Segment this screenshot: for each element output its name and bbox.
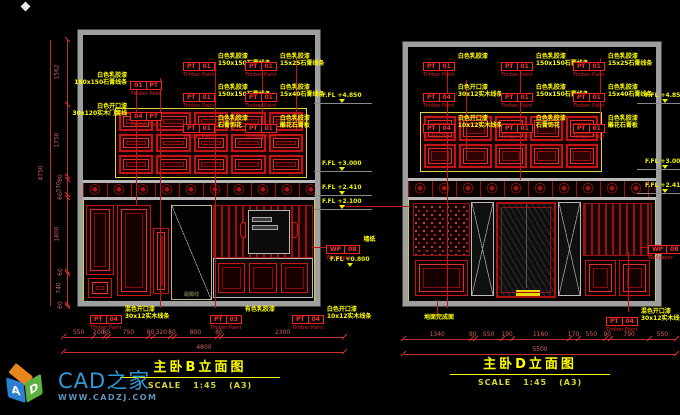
frieze-band xyxy=(408,178,656,200)
level-marker: F.FL +0.800 xyxy=(330,256,370,267)
dimension-segment: 1750 xyxy=(56,104,67,176)
wall-elevation xyxy=(408,200,656,301)
brand-name: CAD之家 xyxy=(58,370,158,393)
coffer-cell xyxy=(156,155,190,174)
sheet-size: (A3) xyxy=(229,381,252,390)
wainscot-panel xyxy=(415,260,468,296)
level-triangle-icon xyxy=(347,263,353,267)
dimension-total-vertical: 4750 xyxy=(41,40,51,306)
dimension-segment: 740 xyxy=(56,273,67,303)
sheet-size: (A3) xyxy=(559,378,582,387)
level-marker: F.FL +2.100 xyxy=(322,198,362,209)
wainscot-panel xyxy=(86,205,114,275)
dimension-segment: 750 xyxy=(108,326,148,337)
dimension-segment: 800 xyxy=(174,326,217,337)
dresser-mirror xyxy=(248,210,290,254)
material-callout: PT04Timber Paint 白色开口漆10x12实木线条 xyxy=(423,115,502,140)
level-marker: F.FL +3.000 xyxy=(645,158,680,169)
title-underline xyxy=(450,374,610,375)
callout-column: PT01Timber Paint 白色乳胶漆15x25石膏线条 PT01Timb… xyxy=(245,53,324,140)
frieze-band xyxy=(83,180,315,200)
scale-ratio: 1:45 xyxy=(523,378,547,387)
dimension-segment: 170 xyxy=(569,328,577,339)
coffer-cell xyxy=(194,155,228,174)
scale-ratio: 1:45 xyxy=(193,381,217,390)
door-threshold xyxy=(516,290,540,296)
callout-column: PT01Timber Paint 白色乳胶漆15x25石膏线条 PT01Timb… xyxy=(573,53,652,140)
material-callout: PT01Timber Paint 白色乳胶漆15x25石膏线条 xyxy=(573,53,652,78)
dimension-segment: 190 xyxy=(502,328,511,339)
elevation-title-block: 主卧D立面图 SCALE1:45(A3) xyxy=(450,353,610,387)
material-callout: 04PTTimber Paint 白色开口漆30x120实木门套线 xyxy=(72,103,162,128)
dimension-segment: 550 xyxy=(649,328,676,339)
material-callout: PT01Timber Paint 白色乳胶漆15x40石膏线条 xyxy=(573,84,652,109)
mirror-panel xyxy=(471,202,494,296)
level-marker: F.FL +3.000 xyxy=(322,160,362,171)
dimension-segment: 550 xyxy=(475,328,502,339)
wainscot-panel xyxy=(88,278,112,298)
wallpaper-callout: WP08Wallpaper xyxy=(648,236,680,261)
mirror-shelf xyxy=(252,225,278,230)
cube-icon: A D xyxy=(2,361,53,412)
elevation-title: 主卧D立面图 xyxy=(450,353,610,373)
wall-elevation: 踢脚线 xyxy=(83,200,315,301)
coffer-cell xyxy=(459,144,491,169)
level-marker: F.FL +4.850 xyxy=(322,92,362,103)
level-marker: F.FL +4.850 xyxy=(645,92,680,103)
leader-line xyxy=(628,252,629,312)
dimension-chain-horizontal: 134090550190116017055090790550 xyxy=(404,328,676,340)
coffer-cell xyxy=(424,144,456,169)
wainscot-panel xyxy=(117,205,151,296)
material-callout: PT01Timber Paint 白色乳胶漆15x25石膏线条 xyxy=(245,53,324,78)
dimension-total-horizontal: 4800 xyxy=(64,343,344,353)
door-leaf: 踢脚线 xyxy=(171,205,212,300)
dimension-segment: 2300 xyxy=(221,326,344,337)
chair-arm xyxy=(292,222,298,238)
dimension-segment: 550 xyxy=(64,326,93,337)
wainscot-panel xyxy=(585,260,616,296)
door-note: 踢脚线 xyxy=(172,292,211,298)
callout-column: PT01Timber Paint 白色乳胶漆 PT04Timber Paint … xyxy=(423,53,502,140)
dimension-segment: 790 xyxy=(610,328,649,339)
cad-canvas: 踢脚线 xyxy=(0,0,680,415)
dimension-segment: 1340 xyxy=(404,328,471,339)
cabpanel xyxy=(249,263,276,293)
screen-artifact xyxy=(21,2,31,12)
glass-door xyxy=(496,202,556,298)
coffer-cell xyxy=(269,155,303,174)
cabinet-row xyxy=(213,258,313,298)
cabpanel xyxy=(218,263,245,293)
brand-logo: A D CAD之家 WWW.CADZJ.COM xyxy=(4,363,158,409)
dimension-segment: 550 xyxy=(578,328,605,339)
material-callout: PT01Timber Paint 白色乳胶漆15x40石膏线条 xyxy=(245,84,324,109)
dimension-segment: 1160 xyxy=(512,328,570,339)
level-marker: F.FL +2.410 xyxy=(645,182,680,193)
dimension-chain-horizontal: 550200807508032080800802300 xyxy=(64,326,344,338)
chair-arm xyxy=(240,222,246,238)
material-callout: PT01Timber Paint 白色乳胶漆雕花石膏板 xyxy=(245,115,324,140)
coffer-cell xyxy=(530,144,562,169)
callout-column: 01PTTimber Paint 白色乳胶漆150x150石膏线条 04PTTi… xyxy=(64,72,162,128)
material-callout: PT04Timber Paint 白色开口漆30x12实木线条 xyxy=(423,84,502,109)
coffer-cell xyxy=(566,144,598,169)
mirror-shelf xyxy=(252,217,272,222)
coffer-cell xyxy=(231,155,265,174)
mirror-panel xyxy=(558,202,581,296)
dimension-chain-vertical: 15621750803706018006074060 xyxy=(56,40,68,306)
dimension-segment: 1800 xyxy=(56,197,67,271)
material-callout: 01PTTimber Paint 白色乳胶漆150x150石膏线条 xyxy=(74,72,162,97)
coffer-cell xyxy=(495,144,527,169)
cabpanel xyxy=(281,263,308,293)
level-marker: F.FL +2.410 xyxy=(322,184,362,195)
scale-label: SCALE xyxy=(478,378,511,387)
material-callout: PT01Timber Paint 白色乳胶漆 xyxy=(423,53,502,78)
wallpaper-stripes xyxy=(583,203,652,256)
curtain-panel xyxy=(413,203,470,256)
brand-url: WWW.CADZJ.COM xyxy=(58,393,158,402)
floor-note: 地面完成面 xyxy=(424,314,454,321)
dimension-segment: 1562 xyxy=(56,40,67,104)
wainscot-panel xyxy=(619,260,650,296)
wainscot-panel xyxy=(153,228,169,294)
material-callout: PT01Timber Paint 白色乳胶漆雕花石膏板 xyxy=(573,115,652,140)
dimension-segment: 60 xyxy=(56,304,67,306)
